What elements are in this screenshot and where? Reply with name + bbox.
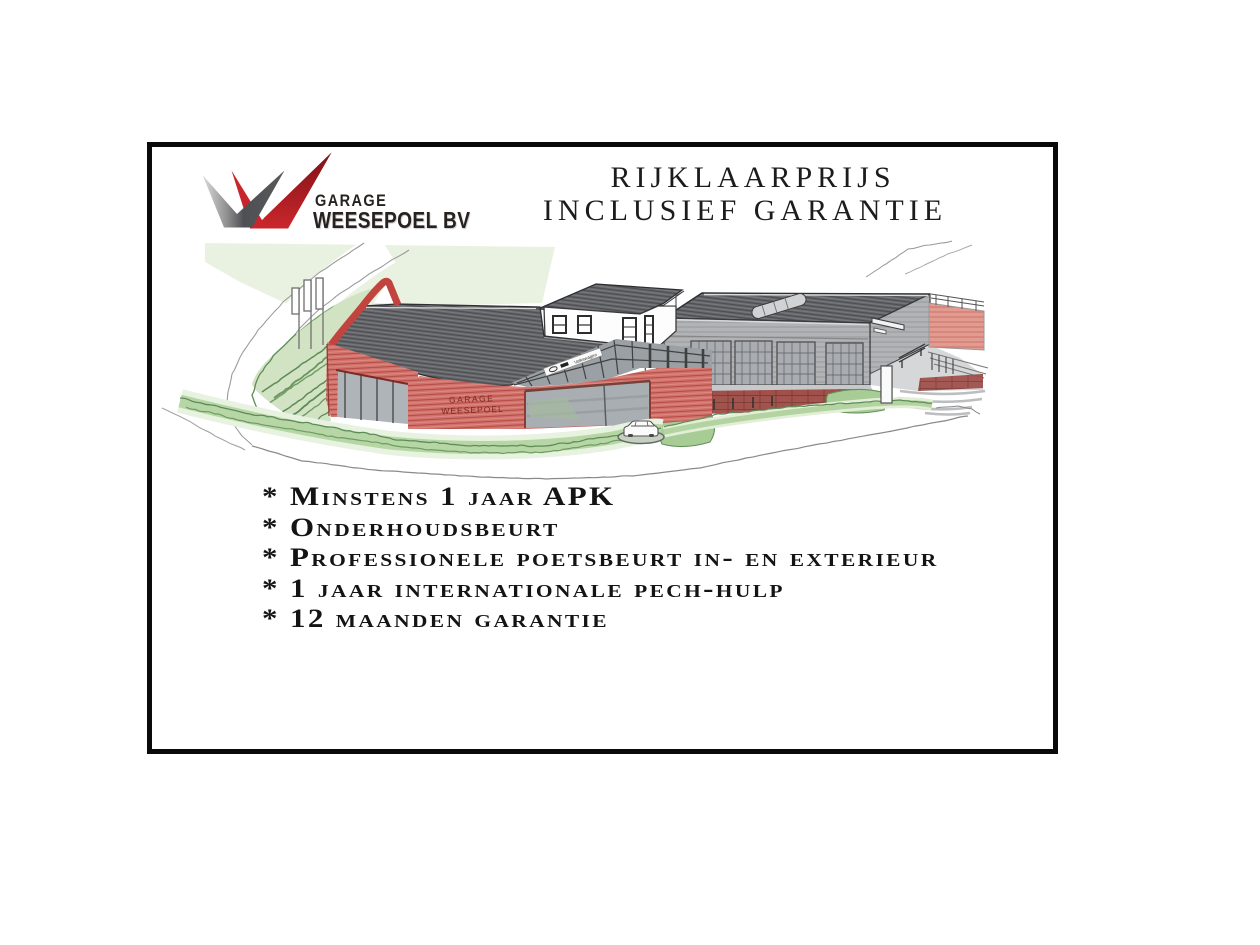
svg-text:GARAGE: GARAGE: [449, 393, 495, 405]
